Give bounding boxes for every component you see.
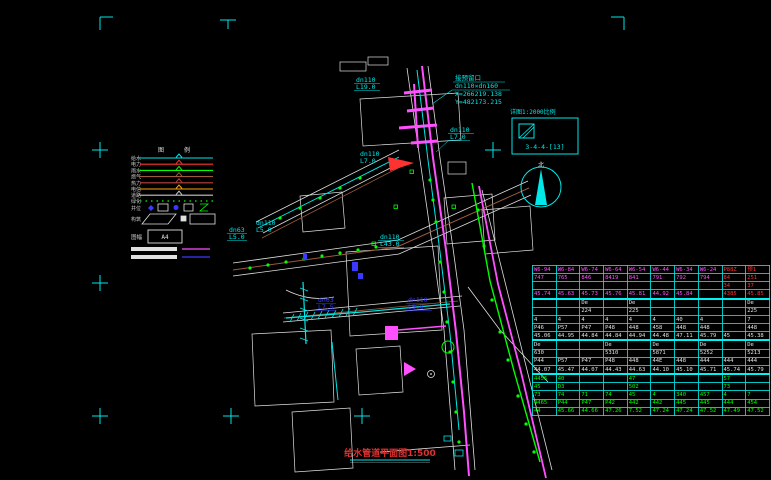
table-cell: 45.06	[533, 332, 557, 341]
table-cell: 4385	[722, 290, 746, 299]
table-cell: 4	[604, 315, 628, 323]
table-cell: 4	[698, 315, 722, 323]
table-cell: 40	[675, 315, 699, 323]
table-cell: 45	[533, 383, 557, 391]
table-cell	[675, 383, 699, 391]
table-row: P46P57P47P48448458448448448	[533, 324, 770, 332]
legend-row-label: 热力	[131, 180, 141, 187]
table-cell: 794	[698, 274, 722, 282]
table-row: 45.7445.6345.7345.7645.8144.9245.8443854…	[533, 290, 770, 299]
corner-mark-top-left	[100, 17, 113, 30]
north-arrow-needle-icon	[535, 169, 547, 205]
small-square-icon	[181, 216, 186, 221]
table-row: 4444444047	[533, 315, 770, 323]
table-cell	[651, 299, 675, 308]
table-cell: 448	[627, 324, 651, 332]
table-cell	[651, 282, 675, 290]
table-cell	[556, 307, 580, 315]
table-cell: 44E	[651, 357, 675, 365]
table-cell: 45.76	[604, 290, 628, 299]
table-cell: 44.43	[604, 365, 628, 374]
table-cell: 444	[746, 357, 770, 365]
table-cell	[698, 299, 722, 308]
table-cell: 44.10	[651, 365, 675, 374]
legend-scale-bars	[131, 247, 210, 259]
table-cell: W6-54	[627, 266, 651, 274]
table-cell: De	[604, 340, 628, 349]
table-cell	[580, 282, 604, 290]
drawing-title: 给水管道平面图	[344, 447, 407, 459]
table-cell: 4	[627, 315, 651, 323]
table-cell: 225	[627, 307, 651, 315]
table-row: 7374717445434045747	[533, 391, 770, 399]
table-cell	[675, 340, 699, 349]
table-cell: 630	[533, 349, 557, 357]
legend-row-label: 雨水	[131, 167, 141, 174]
table-cell: 4	[651, 315, 675, 323]
table-cell: P48	[604, 324, 628, 332]
title-block: 给水管道平面图1:500	[344, 447, 436, 463]
legend-shapes-label: 构筑	[131, 216, 141, 223]
table-cell: 44.07	[580, 365, 604, 374]
table-cell: 45.79	[746, 365, 770, 374]
table-cell	[533, 307, 557, 315]
table-row: 3437	[533, 282, 770, 290]
table-cell	[604, 299, 628, 308]
table-cell: 73	[722, 383, 746, 391]
table-cell: W6-24	[698, 266, 722, 274]
table-cell: 45.47	[556, 365, 580, 374]
table-cell: W6-64	[604, 266, 628, 274]
table-cell	[722, 324, 746, 332]
legend-row-marker	[176, 179, 182, 183]
table-cell: 5213	[746, 349, 770, 357]
table-cell: 40	[556, 374, 580, 383]
table-cell: 747	[533, 274, 557, 282]
table-cell: 251	[746, 274, 770, 282]
table-cell: 45.84	[675, 290, 699, 299]
table-cell	[533, 299, 557, 308]
pipe-label: L7.0	[450, 133, 466, 141]
legend: 图 例 给水电力雨水燃气热力电信道路 绿化 井位 构筑 图幅 A4	[131, 146, 215, 259]
table-cell: 458	[651, 324, 675, 332]
index-box-code: 3-4-4-[13]	[525, 143, 564, 151]
table-cell: 47.24	[675, 407, 699, 415]
table-cell: 74	[604, 391, 628, 399]
table-cell	[698, 290, 722, 299]
table-cell: P47	[580, 324, 604, 332]
annotation-line4: Y=482173.215	[455, 98, 502, 106]
pipe-label: L43.0	[380, 240, 400, 248]
table-cell	[556, 299, 580, 308]
legend-row-label: 电力	[131, 161, 141, 168]
table-cell: 765	[556, 274, 580, 282]
water-pipe-cyan	[258, 70, 463, 456]
survey-point	[428, 371, 435, 378]
table-cell: W6-84	[556, 266, 580, 274]
table-cell: 预1	[746, 266, 770, 274]
pipe-data-table: W6-94W6-84W6-74W6-64W6-54W6-44W6-34W6-24…	[532, 265, 770, 416]
table-cell: 47.26	[604, 407, 628, 415]
table-cell: 44.84	[580, 332, 604, 341]
table-cell: 791	[651, 274, 675, 282]
table-row: DeDeDe	[533, 299, 770, 308]
table-cell: 340	[675, 391, 699, 399]
table-cell: 448	[675, 324, 699, 332]
table-cell: 44.07	[533, 365, 557, 374]
legend-row-label: 给水	[131, 155, 141, 162]
table-cell: P46	[533, 324, 557, 332]
table-cell: 448	[698, 324, 722, 332]
legend-frame-label: 图幅	[131, 233, 143, 241]
north-arrow: 北	[521, 161, 561, 207]
annotation-line1: 接预留口	[455, 73, 481, 82]
north-flow-arrow-red	[388, 157, 414, 171]
legend-row-marker	[176, 154, 182, 158]
table-cell	[556, 282, 580, 290]
table-cell: 44	[533, 407, 557, 415]
drawing-scale: 1:500	[407, 449, 436, 459]
table-cell: 44.94	[627, 332, 651, 341]
table-cell	[698, 374, 722, 383]
table-cell: P42	[604, 399, 628, 407]
table-cell: 45.71	[698, 365, 722, 374]
connection-annotation: 接预留口 dn110×dn160 X=266219.138 Y=482173.2…	[432, 73, 510, 106]
table-cell	[675, 374, 699, 383]
table-cell: 84	[722, 274, 746, 282]
legend-header-1: 图	[158, 147, 164, 154]
table-cell: 224	[580, 307, 604, 315]
table-cell: P57	[556, 357, 580, 365]
table-cell: 44.48	[651, 332, 675, 341]
table-cell: 846	[580, 274, 604, 282]
legend-header-2: 例	[184, 146, 190, 154]
legend-row-marker	[176, 173, 182, 177]
table-cell: 45.10	[675, 365, 699, 374]
table-cell: 445	[698, 399, 722, 407]
table-cell	[698, 307, 722, 315]
box-icon	[184, 204, 193, 211]
table-cell: 442	[627, 399, 651, 407]
table-cell: 45	[722, 332, 746, 341]
table-cell: P44	[533, 357, 557, 365]
table-cell: 502	[627, 383, 651, 391]
table-cell: 44.95	[556, 332, 580, 341]
table-row: 4445.6644.6647.267.5247.2447.2447.5247.4…	[533, 407, 770, 415]
legend-row-label: 燃气	[131, 174, 141, 181]
edge-tick-top	[220, 20, 236, 29]
table-cell: 47.49	[722, 407, 746, 415]
table-cell: 448	[746, 324, 770, 332]
parallelogram-icon	[142, 214, 176, 224]
table-cell: 444	[722, 399, 746, 407]
table-cell: D3	[556, 383, 580, 391]
table-row: 45D350273	[533, 383, 770, 391]
table-cell: 792	[675, 274, 699, 282]
table-cell	[627, 282, 651, 290]
table-row: 747765846841984179179279484251	[533, 274, 770, 282]
north-label: 北	[538, 161, 544, 169]
table-cell	[651, 374, 675, 383]
table-cell: 37	[746, 282, 770, 290]
building-outlines	[252, 57, 533, 472]
table-cell: 445	[675, 399, 699, 407]
table-cell: 454	[746, 399, 770, 407]
table-cell: 74	[556, 391, 580, 399]
table-cell	[556, 349, 580, 357]
legend-line-rows: 给水电力雨水燃气热力电信道路	[131, 154, 213, 199]
table-cell	[675, 307, 699, 315]
table-cell	[675, 282, 699, 290]
svg-text:给水管道平面图1:500: 给水管道平面图1:500	[344, 447, 436, 459]
table-cell: 44.66	[580, 407, 604, 415]
table-cell: 8419	[604, 274, 628, 282]
table-row: 4456404757	[533, 374, 770, 383]
table-cell	[746, 383, 770, 391]
table-cell: De	[698, 340, 722, 349]
table-cell: 71	[580, 391, 604, 399]
table-cell: W6-44	[651, 266, 675, 274]
table-cell	[722, 349, 746, 357]
table-cell	[604, 374, 628, 383]
table-cell: P57	[556, 324, 580, 332]
annotation-line2: dn110×dn160	[455, 82, 498, 90]
table-cell: 4465	[533, 399, 557, 407]
table-cell: 4	[580, 315, 604, 323]
table-cell: 44.84	[604, 332, 628, 341]
table-cell	[556, 340, 580, 349]
table-cell: De	[651, 340, 675, 349]
table-cell: 5310	[604, 349, 628, 357]
legend-shape-icons	[142, 214, 215, 224]
table-cell: 45	[627, 391, 651, 399]
table-cell: De	[746, 299, 770, 308]
table-cell	[580, 349, 604, 357]
rect-icon	[190, 214, 215, 224]
table-cell: P47	[580, 357, 604, 365]
cad-sheet: { "colors":{"cyan":"#00e8e8","magenta":"…	[0, 0, 771, 480]
table-row: 4465P44P47P42442442445445444454	[533, 399, 770, 407]
table-cell: 47.52	[698, 407, 722, 415]
table-cell: 444	[698, 357, 722, 365]
table-cell: 45.74	[722, 365, 746, 374]
table-cell: 47.52	[746, 407, 770, 415]
valve-chamber	[385, 326, 398, 340]
legend-symbol-icons	[148, 204, 208, 211]
table-cell: 45.38	[746, 332, 770, 341]
legend-row-label: 电信	[131, 186, 141, 193]
table-cell: 45.79	[698, 332, 722, 341]
table-cell	[651, 307, 675, 315]
table-cell: 57	[722, 374, 746, 383]
table-row: 44.0745.4744.0744.4344.6344.1045.1045.71…	[533, 365, 770, 374]
table-cell: P44	[556, 399, 580, 407]
table-cell	[533, 282, 557, 290]
table-cell: 4	[556, 315, 580, 323]
manhole-ring	[442, 341, 454, 353]
table-cell: 442	[651, 399, 675, 407]
table-cell: 34	[722, 282, 746, 290]
table-cell: 45.85	[746, 290, 770, 299]
table-cell: De	[533, 340, 557, 349]
table-cell: P48	[604, 357, 628, 365]
legend-row-marker	[176, 166, 182, 170]
pipe-labels: dn110 L19.0 dn110 L7.0 dn110 L7.0 dn110 …	[227, 76, 474, 311]
table-cell	[604, 383, 628, 391]
table-row: P44P57P47P4844844E448444444444	[533, 357, 770, 365]
legend-row-marker	[176, 160, 182, 164]
table-cell: 44.63	[627, 365, 651, 374]
annotation-line3: X=266219.138	[455, 90, 502, 98]
table-cell: De	[580, 299, 604, 308]
pipe-label: L5.0	[229, 233, 245, 241]
table-cell: 4456	[533, 374, 557, 383]
table-cell: 45.63	[556, 290, 580, 299]
table-cell	[580, 374, 604, 383]
table-cell: De	[627, 299, 651, 308]
table-row: 224225225	[533, 307, 770, 315]
table-cell: 225	[746, 307, 770, 315]
table-cell: W6-74	[580, 266, 604, 274]
pipe-label: L7.5	[318, 303, 334, 311]
table-cell	[722, 307, 746, 315]
table-cell: 5252	[698, 349, 722, 357]
pipe-label: L7.0	[360, 157, 376, 165]
table-cell: 7	[746, 391, 770, 399]
table-cell: 4	[722, 391, 746, 399]
table-cell	[604, 307, 628, 315]
table-cell: De	[746, 340, 770, 349]
pipe-label: L5.0	[408, 303, 424, 311]
table-cell: 73	[533, 391, 557, 399]
legend-dotted-label: 绿化	[131, 198, 141, 205]
table-cell: 44.92	[651, 290, 675, 299]
table-cell: 4	[533, 315, 557, 323]
table-cell: P88Z	[722, 266, 746, 274]
table-cell: 448	[627, 357, 651, 365]
table-cell	[722, 299, 746, 308]
table-cell: 448	[675, 357, 699, 365]
table-cell: 45.66	[556, 407, 580, 415]
table-cell	[746, 374, 770, 383]
legend-row-marker	[176, 191, 182, 195]
pipe-data-table-grid: W6-94W6-84W6-74W6-64W6-54W6-44W6-34W6-24…	[532, 265, 770, 416]
table-cell: W6-94	[533, 266, 557, 274]
table-cell: 45.73	[580, 290, 604, 299]
detail-index-box: 详图1:2000比例 3-4-4-[13]	[510, 108, 578, 154]
table-cell: P47	[580, 399, 604, 407]
table-cell	[580, 383, 604, 391]
box-icon	[158, 204, 168, 211]
table-cell	[698, 282, 722, 290]
table-cell: 45.74	[533, 290, 557, 299]
table-row: 45.0644.9544.8444.8444.9444.4847.1145.79…	[533, 332, 770, 341]
table-row: W6-94W6-84W6-74W6-64W6-54W6-44W6-34W6-24…	[533, 266, 770, 274]
table-cell: 47	[627, 374, 651, 383]
pipe-label: L5.0	[256, 226, 272, 234]
table-cell: 7	[746, 315, 770, 323]
table-cell	[651, 383, 675, 391]
table-cell	[698, 383, 722, 391]
table-cell: 7.52	[627, 407, 651, 415]
pipe-label: L19.0	[356, 83, 376, 91]
table-cell	[627, 349, 651, 357]
table-cell: 5871	[651, 349, 675, 357]
blue-fittings	[303, 254, 363, 279]
table-cell: 444	[722, 357, 746, 365]
flow-arrow	[404, 362, 416, 376]
legend-row-marker	[176, 185, 182, 189]
corner-mark-top-right	[611, 17, 624, 30]
table-cell	[675, 349, 699, 357]
table-cell: 4	[651, 391, 675, 399]
table-cell	[627, 340, 651, 349]
dot-icon	[174, 205, 179, 210]
legend-frame-code: A4	[161, 234, 169, 241]
table-cell	[580, 340, 604, 349]
table-cell: 457	[698, 391, 722, 399]
diamond-icon	[148, 205, 154, 211]
table-cell: 45.81	[627, 290, 651, 299]
table-cell	[675, 299, 699, 308]
tree-dots	[248, 176, 535, 453]
table-cell: W6-34	[675, 266, 699, 274]
table-row: DeDeDeDeDe	[533, 340, 770, 349]
table-cell: 841	[627, 274, 651, 282]
table-cell: 47.24	[651, 407, 675, 415]
table-cell	[604, 282, 628, 290]
table-cell	[722, 340, 746, 349]
street-outlines	[233, 66, 552, 470]
table-row: 6305310587152525213	[533, 349, 770, 357]
index-box-label: 详图1:2000比例	[510, 108, 556, 116]
table-cell	[722, 315, 746, 323]
table-cell: 47.11	[675, 332, 699, 341]
zigzag-icon	[200, 204, 208, 211]
legend-symbols-label: 井位	[131, 205, 141, 212]
